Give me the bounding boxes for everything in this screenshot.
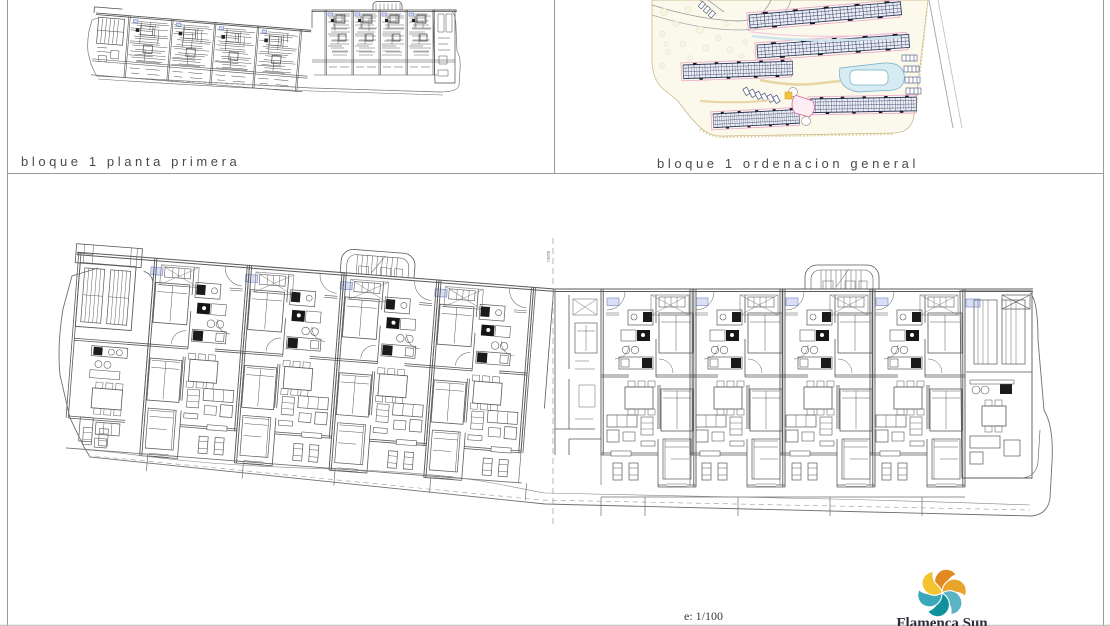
svg-text:bloque 1 ordenacion general: bloque 1 ordenacion general <box>657 156 919 171</box>
svg-text:bloque 1 planta primera: bloque 1 planta primera <box>21 154 240 169</box>
svg-text:Flamenca Sun: Flamenca Sun <box>896 616 988 626</box>
svg-text:norte: norte <box>546 250 552 262</box>
svg-text:e: 1/100: e: 1/100 <box>684 609 723 623</box>
